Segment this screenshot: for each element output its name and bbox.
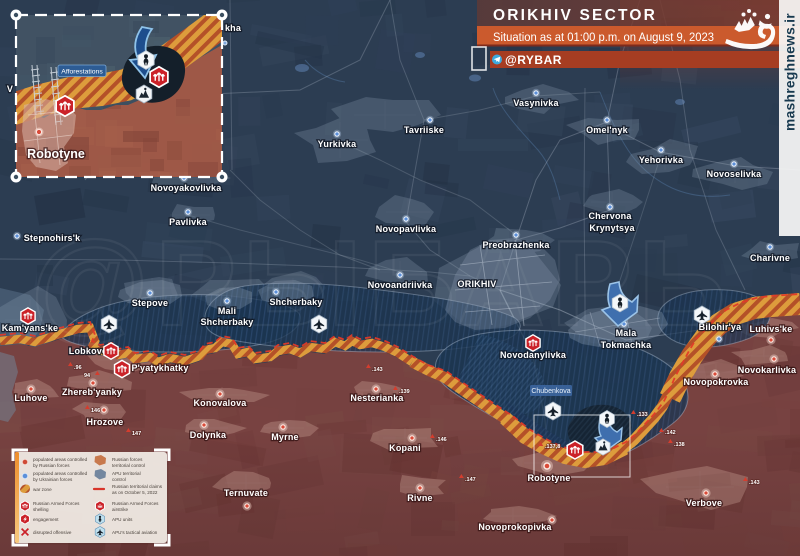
svg-text:Yurkivka: Yurkivka bbox=[318, 139, 357, 149]
svg-text:Charivne: Charivne bbox=[750, 253, 790, 263]
svg-text:Vasynivka: Vasynivka bbox=[513, 98, 559, 108]
svg-text:.142: .142 bbox=[665, 430, 676, 436]
svg-text:Ternuvate: Ternuvate bbox=[224, 488, 268, 498]
svg-text:Novoselivka: Novoselivka bbox=[707, 169, 763, 179]
svg-text:Dolynka: Dolynka bbox=[190, 430, 227, 440]
svg-text:.146: .146 bbox=[436, 437, 447, 443]
svg-text:Stepnohirs'k: Stepnohirs'k bbox=[24, 233, 81, 243]
svg-text:Novoandriivka: Novoandriivka bbox=[368, 280, 433, 290]
svg-text:by Russian forces: by Russian forces bbox=[33, 463, 70, 468]
svg-text:.138: .138 bbox=[674, 442, 685, 448]
svg-text:mashreghnews.ir: mashreghnews.ir bbox=[783, 13, 798, 131]
svg-text:147: 147 bbox=[132, 431, 141, 437]
svg-text:by Ukrainian forces: by Ukrainian forces bbox=[33, 477, 73, 482]
svg-text:Krynytsya: Krynytsya bbox=[589, 223, 635, 233]
svg-text:Novopavlivka: Novopavlivka bbox=[376, 224, 437, 234]
svg-text:Afforestations: Afforestations bbox=[61, 69, 103, 76]
svg-text:Verbove: Verbove bbox=[686, 498, 722, 508]
svg-text:Omel'nyk: Omel'nyk bbox=[586, 125, 629, 135]
svg-text:Hrozove: Hrozove bbox=[87, 417, 124, 427]
svg-text:Situation as at 01:00 p.m. on: Situation as at 01:00 p.m. on August 9, … bbox=[493, 30, 714, 44]
svg-text:APU's tactical aviation: APU's tactical aviation bbox=[112, 530, 158, 535]
svg-text:ORIKHIV: ORIKHIV bbox=[458, 279, 497, 289]
svg-text:Shcherbaky: Shcherbaky bbox=[269, 297, 322, 307]
svg-text:shelling: shelling bbox=[33, 507, 49, 512]
svg-text:Russian forces: Russian forces bbox=[112, 457, 143, 462]
svg-text:airstrike: airstrike bbox=[112, 507, 129, 512]
svg-text:Preobrazhenka: Preobrazhenka bbox=[482, 240, 550, 250]
svg-text:Shcherbaky: Shcherbaky bbox=[200, 317, 253, 327]
svg-text:.96: .96 bbox=[74, 365, 82, 371]
svg-text:.143: .143 bbox=[749, 480, 760, 486]
svg-text:Bilohir'ya: Bilohir'ya bbox=[699, 322, 742, 332]
svg-text:Zhereb'yanky: Zhereb'yanky bbox=[62, 387, 122, 397]
svg-text:Chubenkova: Chubenkova bbox=[531, 388, 570, 395]
svg-text:V: V bbox=[7, 84, 13, 94]
svg-text:kha: kha bbox=[225, 23, 242, 33]
svg-text:Mala: Mala bbox=[616, 328, 638, 338]
svg-text:Russian Armed Forces: Russian Armed Forces bbox=[33, 501, 80, 506]
svg-text:Luhivs'ke: Luhivs'ke bbox=[750, 324, 793, 334]
svg-text:ORIKHIV SECTOR: ORIKHIV SECTOR bbox=[493, 7, 657, 24]
svg-text:Nesterianka: Nesterianka bbox=[350, 393, 404, 403]
svg-text:Pavlivka: Pavlivka bbox=[169, 217, 207, 227]
svg-text:Kopani: Kopani bbox=[389, 443, 421, 453]
svg-text:as on October 5, 2022: as on October 5, 2022 bbox=[112, 490, 158, 495]
svg-text:Yehorivka: Yehorivka bbox=[639, 155, 684, 165]
svg-text:Kam'yans'ke: Kam'yans'ke bbox=[2, 323, 59, 333]
svg-text:Luhove: Luhove bbox=[14, 393, 47, 403]
svg-text:146: 146 bbox=[91, 408, 100, 414]
svg-text:.143: .143 bbox=[372, 367, 383, 373]
svg-text:Chervona: Chervona bbox=[588, 211, 632, 221]
svg-text:engagement: engagement bbox=[33, 517, 59, 522]
svg-text:Lobkove: Lobkove bbox=[69, 346, 107, 356]
svg-text:94: 94 bbox=[84, 373, 91, 379]
svg-text:war zone: war zone bbox=[33, 487, 52, 492]
svg-text:Myrne: Myrne bbox=[271, 432, 299, 442]
svg-text:P'yatykhatky: P'yatykhatky bbox=[131, 363, 188, 373]
svg-text:APU territorial: APU territorial bbox=[112, 471, 141, 476]
svg-text:territorial control: territorial control bbox=[112, 463, 145, 468]
svg-text:disrupted offensive: disrupted offensive bbox=[33, 530, 72, 535]
svg-text:Novopokrovka: Novopokrovka bbox=[684, 377, 750, 387]
svg-text:Konovalova: Konovalova bbox=[193, 398, 247, 408]
svg-text:APU units: APU units bbox=[112, 517, 133, 522]
svg-text:Novokarlivka: Novokarlivka bbox=[738, 365, 797, 375]
svg-text:Russian territorial claims: Russian territorial claims bbox=[112, 484, 163, 489]
svg-text:Russian Armed Forces: Russian Armed Forces bbox=[112, 501, 159, 506]
svg-text:Mali: Mali bbox=[218, 306, 236, 316]
svg-text:.137,8: .137,8 bbox=[545, 444, 560, 450]
svg-text:Tokmachka: Tokmachka bbox=[601, 340, 652, 350]
svg-text:@RYBAR: @RYBAR bbox=[505, 53, 562, 67]
svg-text:.133: .133 bbox=[637, 412, 648, 418]
svg-text:Robotyne: Robotyne bbox=[527, 473, 570, 483]
svg-text:.139: .139 bbox=[399, 389, 410, 395]
svg-text:Novoyakovlivka: Novoyakovlivka bbox=[151, 183, 223, 193]
svg-text:Novoprokopivka: Novoprokopivka bbox=[478, 522, 552, 532]
svg-text:Robotyne: Robotyne bbox=[27, 147, 85, 161]
svg-text:control: control bbox=[112, 477, 126, 482]
svg-text:populated areas controlled: populated areas controlled bbox=[33, 457, 88, 462]
svg-text:Rivne: Rivne bbox=[407, 493, 433, 503]
svg-text:Tavriiske: Tavriiske bbox=[404, 125, 444, 135]
svg-text:.147: .147 bbox=[465, 477, 476, 483]
svg-text:Stepove: Stepove bbox=[132, 298, 168, 308]
svg-text:populated areas controlled: populated areas controlled bbox=[33, 471, 88, 476]
